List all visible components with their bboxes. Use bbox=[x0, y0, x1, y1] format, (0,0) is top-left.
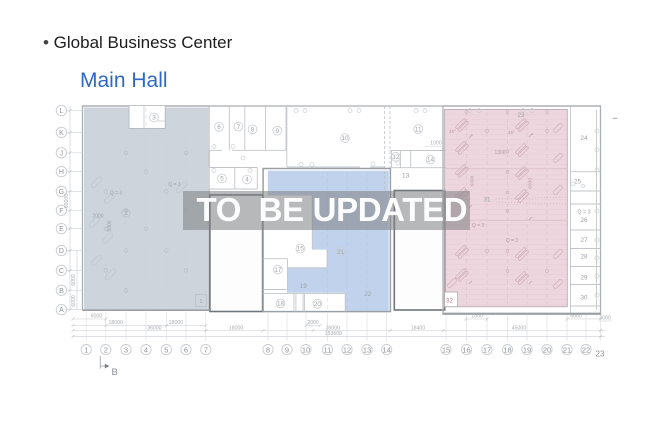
svg-text:8: 8 bbox=[266, 345, 270, 354]
svg-text:1000: 1000 bbox=[430, 141, 442, 147]
svg-text:E: E bbox=[59, 226, 64, 233]
svg-text:6: 6 bbox=[184, 345, 188, 354]
svg-text:24: 24 bbox=[580, 135, 588, 142]
svg-text:45000: 45000 bbox=[512, 325, 527, 331]
svg-text:J: J bbox=[60, 150, 64, 157]
svg-text:2000: 2000 bbox=[307, 320, 319, 326]
svg-text:K: K bbox=[59, 130, 64, 137]
svg-text:14: 14 bbox=[427, 157, 435, 164]
svg-text:D: D bbox=[59, 248, 64, 255]
svg-text:21: 21 bbox=[337, 249, 345, 256]
svg-text:16: 16 bbox=[462, 345, 470, 354]
svg-text:18: 18 bbox=[277, 301, 285, 308]
svg-text:12: 12 bbox=[343, 345, 351, 354]
svg-text:1: 1 bbox=[199, 299, 202, 305]
svg-text:20: 20 bbox=[314, 301, 322, 308]
svg-text:11: 11 bbox=[324, 345, 332, 354]
svg-text:Q = 3: Q = 3 bbox=[472, 223, 485, 229]
svg-text:28: 28 bbox=[580, 253, 588, 260]
svg-text:6000: 6000 bbox=[91, 314, 103, 320]
svg-text:C: C bbox=[59, 268, 64, 275]
svg-text:14: 14 bbox=[383, 345, 391, 354]
svg-text:B: B bbox=[112, 367, 118, 378]
svg-text:11: 11 bbox=[415, 126, 422, 133]
svg-text:6000: 6000 bbox=[71, 274, 77, 286]
svg-text:Q = 3: Q = 3 bbox=[577, 210, 590, 216]
svg-text:18000: 18000 bbox=[229, 325, 244, 331]
svg-text:20: 20 bbox=[543, 345, 551, 354]
svg-text:45°: 45° bbox=[508, 130, 515, 135]
svg-text:Q = 3: Q = 3 bbox=[506, 238, 519, 244]
svg-text:5: 5 bbox=[220, 176, 224, 183]
svg-text:9: 9 bbox=[285, 345, 289, 354]
svg-text:32: 32 bbox=[446, 298, 454, 305]
svg-text:19: 19 bbox=[300, 283, 308, 290]
svg-text:17: 17 bbox=[274, 267, 282, 274]
svg-text:15: 15 bbox=[297, 246, 305, 253]
svg-text:22: 22 bbox=[364, 291, 372, 298]
svg-text:6000: 6000 bbox=[71, 295, 77, 307]
svg-text:F: F bbox=[59, 208, 63, 215]
svg-text:22: 22 bbox=[582, 345, 590, 354]
svg-text:H: H bbox=[59, 169, 64, 176]
svg-text:5: 5 bbox=[164, 345, 168, 354]
svg-text:19: 19 bbox=[523, 345, 531, 354]
svg-text:26: 26 bbox=[580, 217, 588, 224]
svg-text:10: 10 bbox=[302, 345, 310, 354]
svg-text:6: 6 bbox=[217, 124, 221, 131]
svg-text:27: 27 bbox=[580, 237, 588, 244]
svg-text:23: 23 bbox=[596, 350, 605, 359]
svg-text:6000: 6000 bbox=[470, 175, 476, 186]
svg-text:2: 2 bbox=[104, 345, 108, 354]
svg-text:5000: 5000 bbox=[107, 220, 113, 231]
svg-text:12: 12 bbox=[392, 154, 400, 161]
svg-text:15: 15 bbox=[442, 345, 450, 354]
svg-text:4: 4 bbox=[144, 345, 148, 354]
svg-text:3: 3 bbox=[124, 345, 128, 354]
svg-text:1300: 1300 bbox=[494, 150, 505, 156]
svg-text:B: B bbox=[59, 288, 64, 295]
svg-text:17: 17 bbox=[483, 345, 491, 354]
svg-text:8: 8 bbox=[251, 127, 255, 134]
svg-text:4: 4 bbox=[245, 177, 249, 184]
svg-text:3: 3 bbox=[152, 115, 156, 122]
svg-text:Q = 3: Q = 3 bbox=[110, 191, 123, 197]
svg-text:18000: 18000 bbox=[169, 320, 184, 326]
svg-text:2000: 2000 bbox=[92, 214, 103, 220]
svg-text:13: 13 bbox=[363, 345, 371, 354]
svg-text:13: 13 bbox=[402, 172, 410, 179]
svg-text:18400: 18400 bbox=[411, 325, 426, 331]
svg-text:L: L bbox=[59, 108, 63, 115]
svg-text:1: 1 bbox=[84, 345, 88, 354]
svg-text:18: 18 bbox=[503, 345, 511, 354]
svg-text:60000: 60000 bbox=[64, 194, 70, 209]
svg-text:21: 21 bbox=[563, 345, 571, 354]
svg-text:7: 7 bbox=[237, 124, 241, 131]
svg-text:36000: 36000 bbox=[147, 325, 162, 331]
svg-text:A: A bbox=[59, 307, 64, 314]
svg-text:Q = 3: Q = 3 bbox=[168, 182, 181, 188]
svg-text:45°: 45° bbox=[449, 129, 456, 134]
svg-text:29: 29 bbox=[580, 275, 588, 282]
svg-text:6000: 6000 bbox=[528, 178, 534, 189]
svg-text:10: 10 bbox=[341, 135, 349, 142]
svg-text:18000: 18000 bbox=[108, 320, 123, 326]
svg-text:7: 7 bbox=[204, 345, 208, 354]
svg-text:23: 23 bbox=[517, 112, 525, 119]
svg-text:30: 30 bbox=[580, 295, 588, 302]
svg-text:9: 9 bbox=[276, 128, 280, 135]
